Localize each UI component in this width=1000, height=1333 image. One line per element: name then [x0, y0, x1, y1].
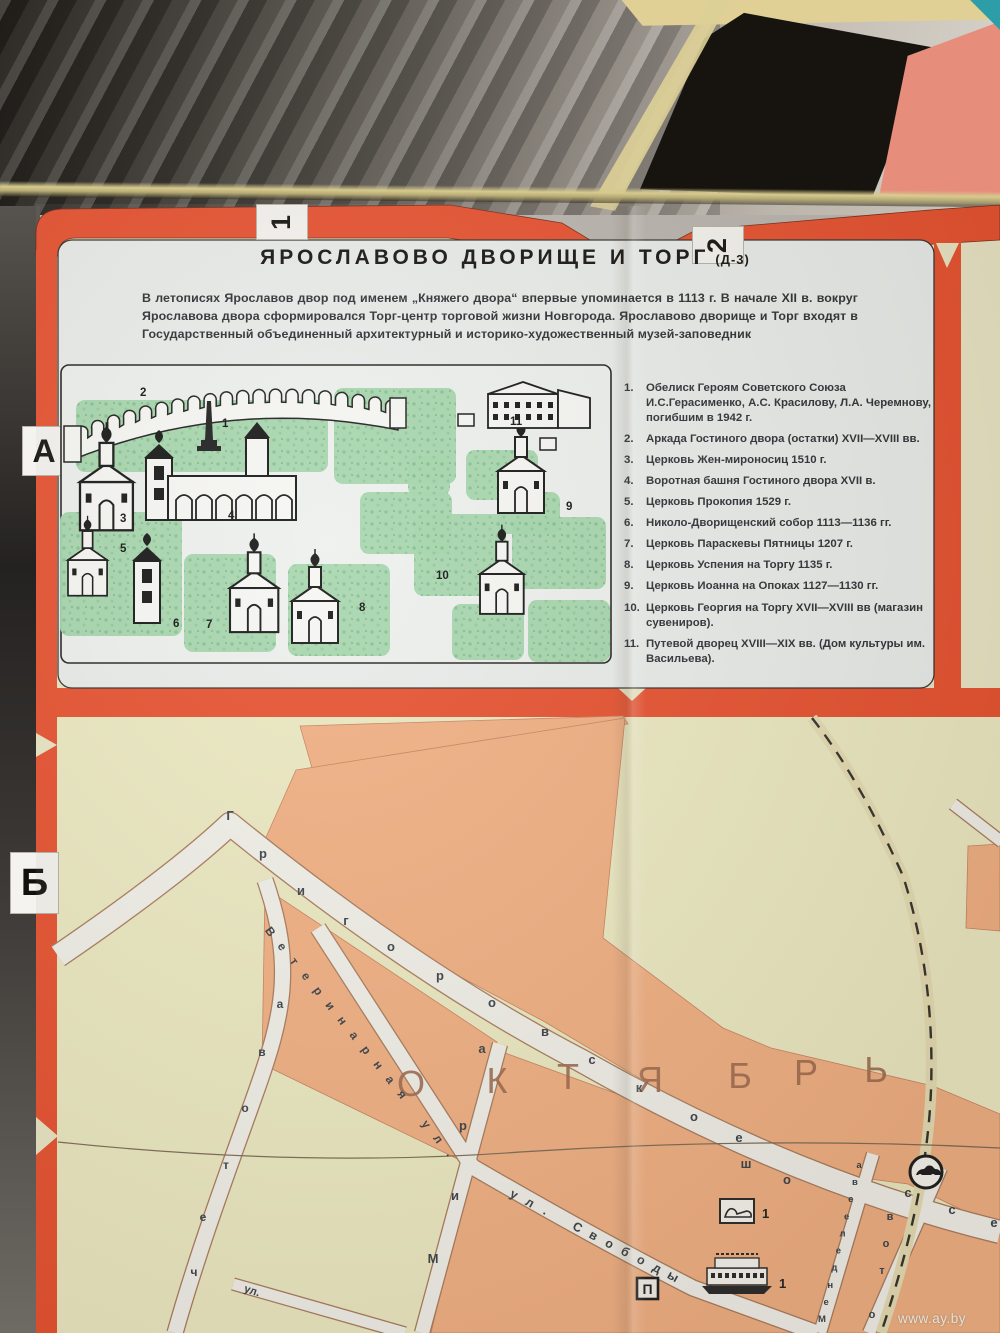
illustration-marker-number: 3: [120, 513, 126, 525]
illustration-marker-number: 11: [510, 416, 523, 428]
svg-text:е: е: [823, 1297, 828, 1308]
illustration-marker-number: 5: [120, 543, 127, 555]
svg-text:т: т: [223, 1158, 229, 1172]
svg-text:е: е: [200, 1210, 207, 1224]
svg-text:н: н: [827, 1280, 833, 1291]
border-divider: [36, 688, 1000, 717]
svg-text:М: М: [428, 1251, 439, 1266]
svg-text:е: е: [836, 1246, 841, 1257]
svg-text:е: е: [848, 1194, 853, 1205]
svg-text:р: р: [459, 1118, 467, 1133]
car-station-icon: [910, 1156, 942, 1188]
svg-text:Г: Г: [226, 808, 234, 823]
svg-text:и: и: [451, 1188, 459, 1203]
illustration-marker-number: 2: [140, 387, 146, 399]
watermark: www.ay.by: [898, 1311, 998, 1326]
photo-of-folded-city-map: ОКТЯБРЬГригоровскоешоссеВетеринарная ул.…: [0, 0, 1000, 1333]
illustration-marker-number: 6: [173, 618, 179, 630]
legend-item: 11.Путевой дворец XVIII—XIX вв. (Дом кул…: [624, 637, 942, 667]
svg-text:о: о: [488, 995, 496, 1010]
svg-text:М: М: [818, 1314, 826, 1325]
legend: 1.Обелиск Героям Советского Союза И.С.Ге…: [624, 381, 942, 673]
svg-text:т: т: [879, 1265, 885, 1277]
svg-text:Т: Т: [557, 1056, 579, 1097]
svg-text:в: в: [852, 1177, 858, 1188]
svg-text:1: 1: [779, 1276, 786, 1291]
svg-text:с: с: [588, 1052, 595, 1067]
svg-text:о: о: [869, 1309, 876, 1321]
border-left: [36, 250, 57, 1333]
fold-crease: [612, 206, 646, 1333]
grid-tab-side-b: Б: [10, 852, 59, 914]
legend-item: 10.Церковь Георгия на Торгу XVII—XVIII в…: [624, 601, 942, 631]
svg-text:о: о: [883, 1238, 890, 1250]
svg-text:о: о: [241, 1101, 248, 1115]
svg-text:е: е: [844, 1211, 849, 1222]
svg-text:р: р: [259, 846, 267, 861]
legend-item: 5.Церковь Прокопия 1529 г.: [624, 495, 942, 510]
svg-text:с: с: [948, 1202, 955, 1217]
svg-text:Ь: Ь: [864, 1049, 888, 1090]
legend-item: 6.Николо-Дворищенский собор 1113—1136 гг…: [624, 516, 942, 531]
legend-item: 4.Воротная башня Гостиного двора XVII в.: [624, 474, 942, 489]
legend-item: 9.Церковь Иоанна на Опоках 1127—1130 гг.: [624, 579, 942, 594]
svg-text:в: в: [887, 1211, 894, 1223]
panel-title-row: ЯРОСЛАВОВО ДВОРИЩЕ И ТОРГ(Д-3): [80, 246, 930, 286]
legend-item: 3.Церковь Жен-мироносиц 1510 г.: [624, 453, 942, 468]
svg-text:е: е: [735, 1130, 742, 1145]
svg-text:о: о: [783, 1172, 791, 1187]
svg-text:а: а: [277, 997, 284, 1011]
page-title-grid-ref: (Д-3): [715, 252, 749, 267]
legend-item: 2.Аркада Гостиного двора (остатки) XVII—…: [624, 432, 942, 447]
svg-text:в: в: [541, 1024, 549, 1039]
svg-text:и: и: [297, 883, 305, 898]
svg-text:о: о: [387, 939, 395, 954]
inset-illustration: 1234567891011: [60, 364, 612, 664]
illustration-marker-number: 10: [436, 570, 449, 582]
svg-text:г: г: [343, 913, 349, 928]
svg-text:Б: Б: [728, 1055, 752, 1096]
svg-text:е: е: [990, 1215, 997, 1230]
page-title: ЯРОСЛАВОВО ДВОРИЩЕ И ТОРГ: [260, 246, 709, 269]
svg-text:К: К: [487, 1060, 508, 1101]
svg-text:р: р: [436, 968, 444, 983]
svg-text:а: а: [856, 1160, 862, 1171]
intro-paragraph: В летописях Ярославов двор под именем „К…: [142, 290, 858, 362]
illustration-marker-number: 7: [206, 619, 212, 631]
svg-text:а: а: [478, 1041, 486, 1056]
svg-text:ч: ч: [191, 1265, 198, 1279]
svg-text:Р: Р: [794, 1052, 818, 1093]
illustration-marker-number: 1: [222, 418, 229, 430]
svg-text:л: л: [840, 1228, 846, 1239]
legend-item: 8.Церковь Успения на Торгу 1135 г.: [624, 558, 942, 573]
illustration-marker-number: 4: [228, 510, 235, 522]
illustration-marker-number: 8: [359, 602, 366, 614]
illustration-marker-number: 9: [566, 501, 572, 513]
grid-tab-top-1: 1: [256, 204, 308, 240]
svg-text:в: в: [258, 1045, 265, 1059]
svg-text:с: с: [904, 1185, 911, 1200]
legend-list: 1.Обелиск Героям Советского Союза И.С.Ге…: [624, 381, 942, 667]
svg-text:д: д: [831, 1263, 837, 1274]
svg-text:ш: ш: [741, 1156, 752, 1171]
legend-item: 1.Обелиск Героям Советского Союза И.С.Ге…: [624, 381, 942, 426]
svg-text:о: о: [690, 1109, 698, 1124]
svg-text:1: 1: [762, 1206, 769, 1221]
legend-item: 7.Церковь Параскевы Пятницы 1207 г.: [624, 537, 942, 552]
